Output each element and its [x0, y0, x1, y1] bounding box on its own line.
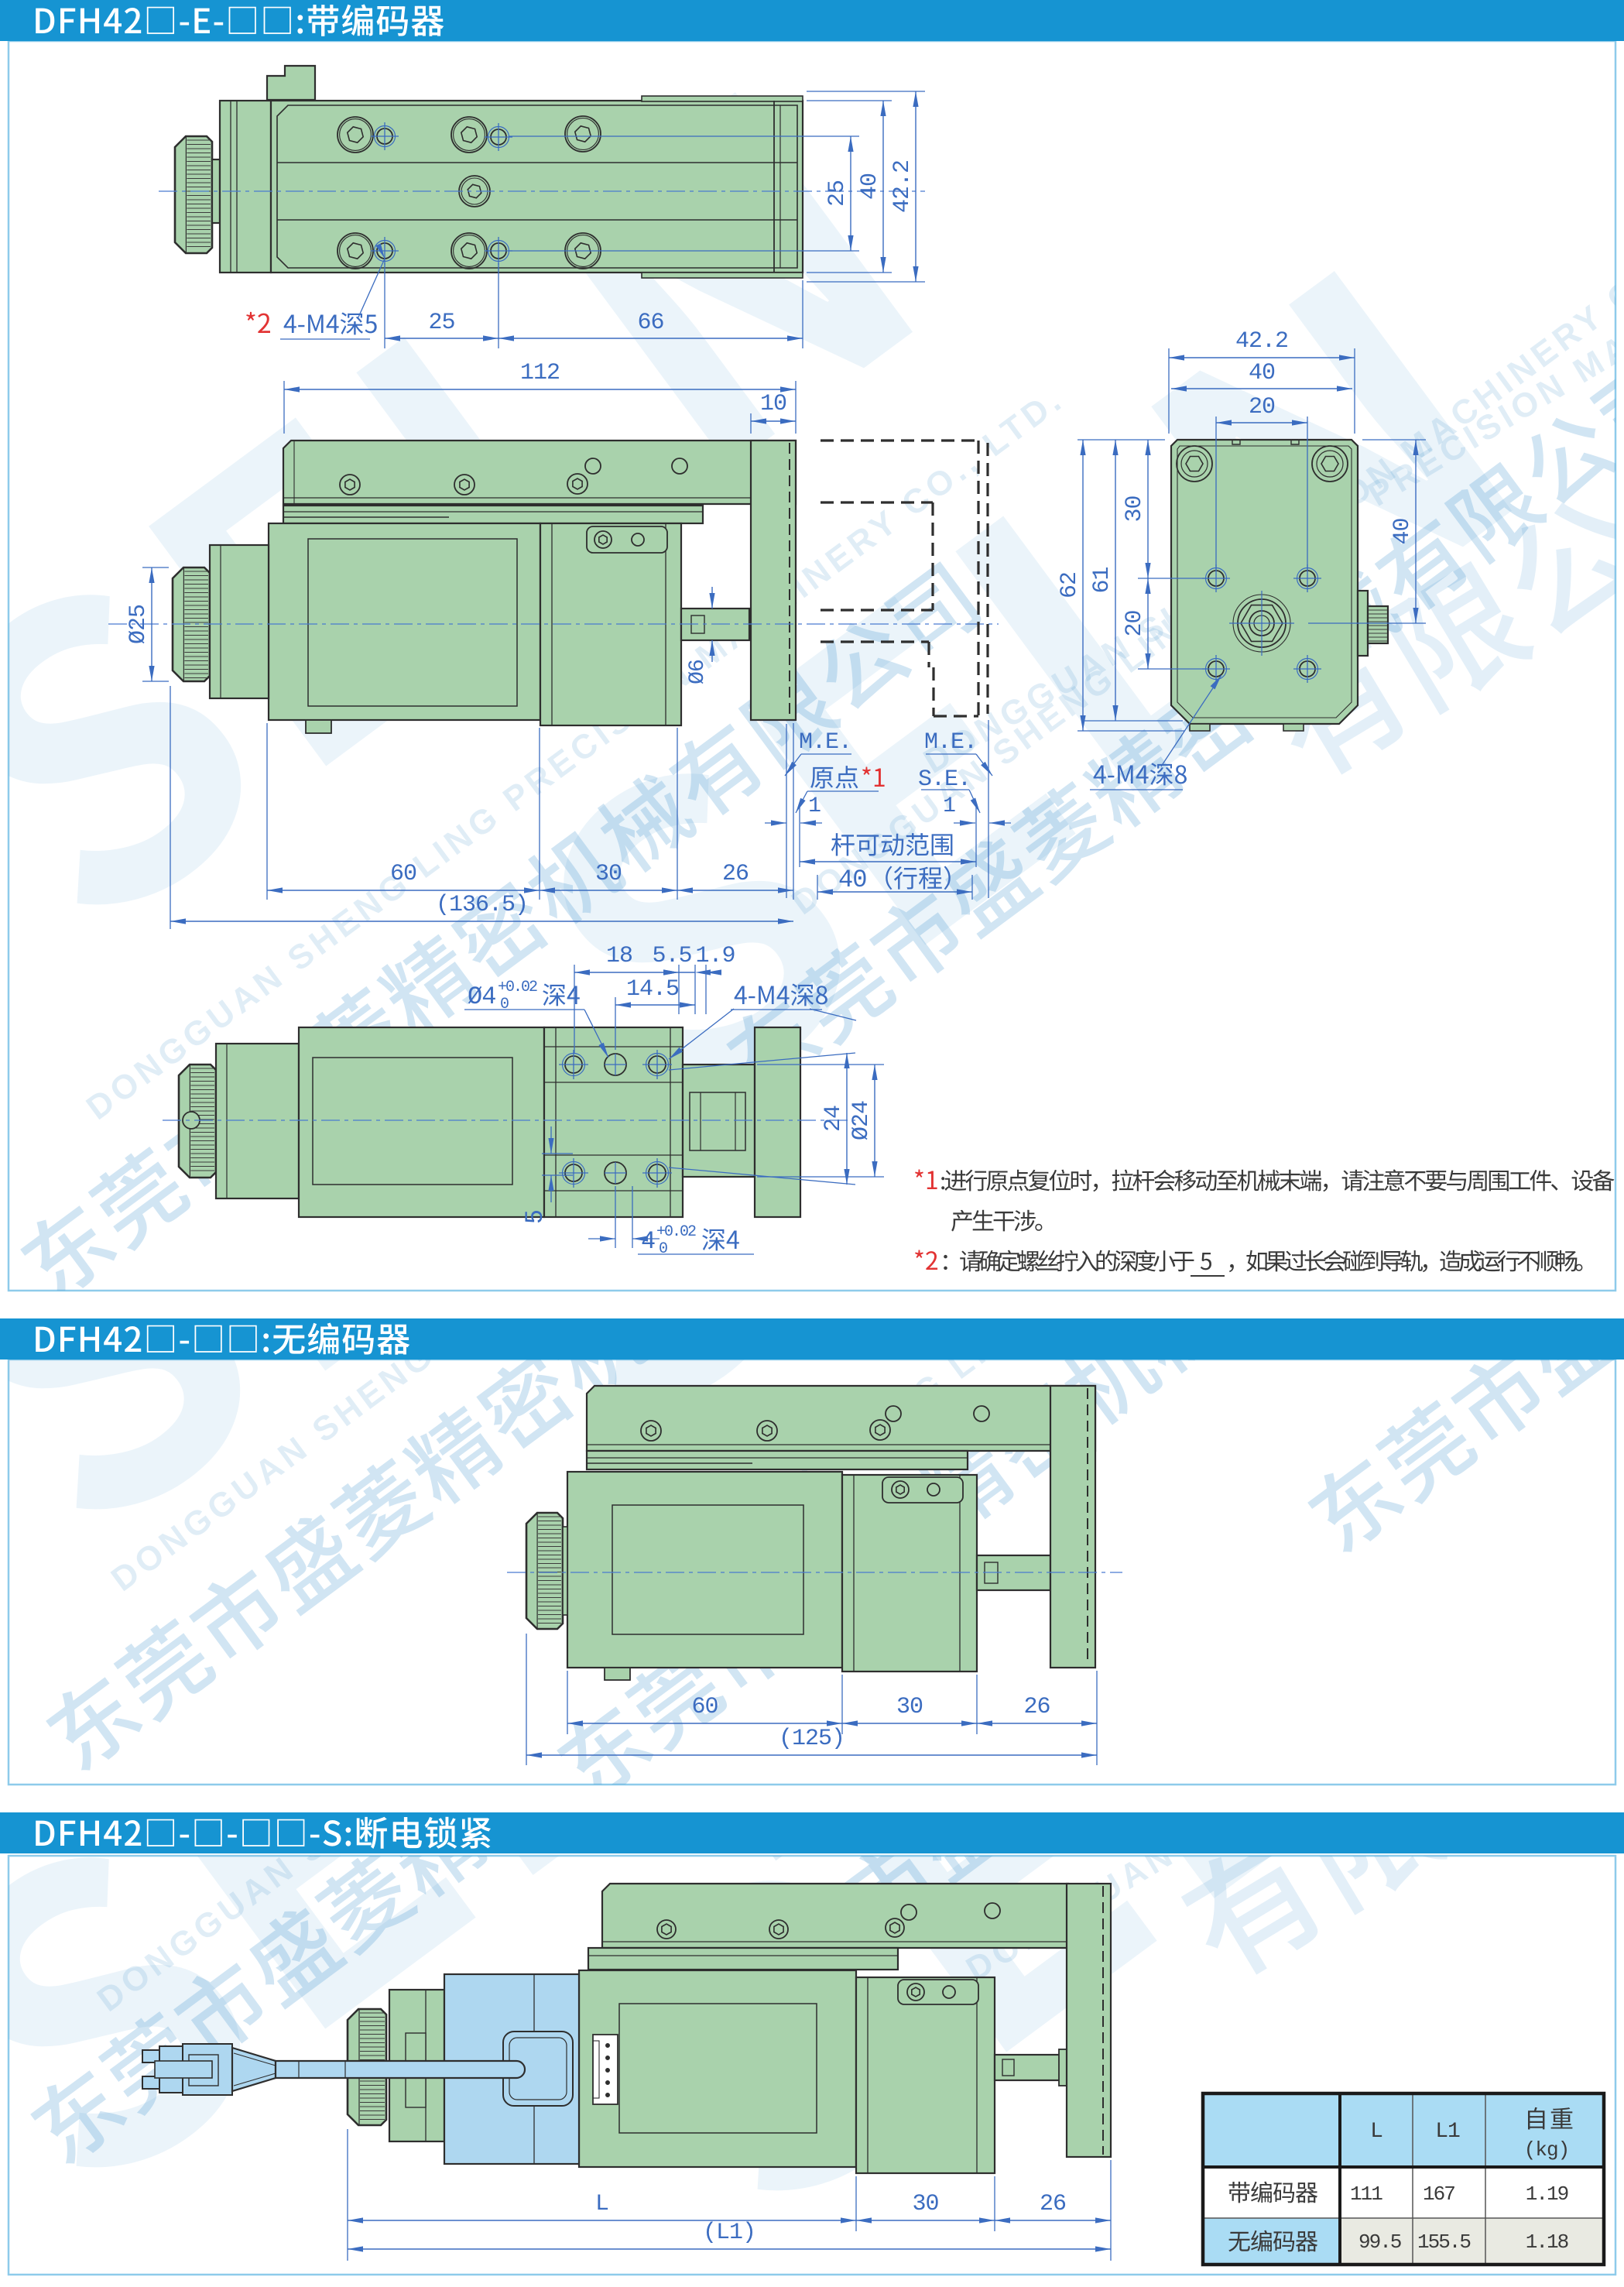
- svg-text:26: 26: [1023, 1694, 1050, 1720]
- svg-text:14.5: 14.5: [626, 976, 679, 1003]
- svg-text:L: L: [595, 2191, 608, 2217]
- svg-text:25: 25: [428, 310, 454, 336]
- svg-text:40: 40: [1389, 518, 1416, 544]
- svg-text:(L1): (L1): [703, 2220, 755, 2246]
- svg-text:30: 30: [595, 861, 622, 887]
- svg-text:30: 30: [912, 2191, 938, 2217]
- svg-text:5: 5: [521, 1210, 550, 1224]
- svg-text:26: 26: [722, 861, 749, 887]
- svg-text:1: 1: [943, 794, 955, 818]
- svg-text:(125): (125): [779, 1726, 845, 1752]
- svg-text:+0.02: +0.02: [498, 979, 537, 996]
- svg-text:0: 0: [500, 996, 509, 1013]
- svg-text:111: 111: [1350, 2182, 1382, 2206]
- svg-text:Ø24: Ø24: [848, 1101, 875, 1140]
- svg-text:26: 26: [1040, 2191, 1066, 2217]
- svg-text:1.19: 1.19: [1526, 2182, 1568, 2206]
- svg-text:10: 10: [760, 391, 786, 417]
- svg-text:M.E.: M.E.: [799, 729, 851, 756]
- svg-text:40: 40: [1249, 360, 1275, 386]
- svg-text:42.2: 42.2: [889, 160, 916, 213]
- svg-text:24: 24: [821, 1106, 847, 1132]
- svg-text:S.E.: S.E.: [918, 766, 971, 793]
- svg-text:1.18: 1.18: [1526, 2230, 1568, 2254]
- svg-text:(136.5): (136.5): [436, 892, 528, 918]
- svg-text:62: 62: [1057, 572, 1083, 598]
- svg-text:155.5: 155.5: [1417, 2230, 1470, 2254]
- svg-text:L1: L1: [1435, 2120, 1460, 2144]
- svg-text:20: 20: [1249, 394, 1275, 420]
- svg-text:1.9: 1.9: [695, 943, 735, 969]
- svg-text:60: 60: [691, 1694, 718, 1720]
- svg-text:0: 0: [659, 1240, 667, 1258]
- svg-text:Ø6: Ø6: [686, 660, 710, 684]
- svg-text:167: 167: [1423, 2182, 1454, 2206]
- svg-text:M.E.: M.E.: [924, 729, 977, 756]
- svg-text:30: 30: [1122, 495, 1148, 522]
- svg-text:5.5: 5.5: [652, 943, 691, 969]
- svg-text:66: 66: [637, 310, 663, 336]
- svg-text:30: 30: [896, 1694, 923, 1720]
- svg-text:25: 25: [824, 180, 851, 207]
- svg-text:99.5: 99.5: [1358, 2230, 1401, 2254]
- svg-text:60: 60: [390, 861, 416, 887]
- svg-text:1: 1: [808, 794, 821, 818]
- svg-text:(kg): (kg): [1524, 2138, 1569, 2162]
- svg-text:Ø4: Ø4: [468, 982, 495, 1011]
- svg-text:18: 18: [606, 943, 632, 969]
- svg-text:+0.02: +0.02: [656, 1223, 696, 1241]
- svg-text:40: 40: [857, 173, 883, 200]
- svg-text:42.2: 42.2: [1235, 328, 1288, 355]
- svg-text:20: 20: [1122, 610, 1148, 636]
- svg-text:Ø25: Ø25: [125, 605, 152, 644]
- svg-text:61: 61: [1089, 567, 1115, 593]
- svg-text:40: 40: [838, 866, 866, 894]
- svg-text:4: 4: [641, 1227, 655, 1256]
- svg-text:L: L: [1370, 2120, 1382, 2144]
- svg-text:112: 112: [520, 360, 560, 386]
